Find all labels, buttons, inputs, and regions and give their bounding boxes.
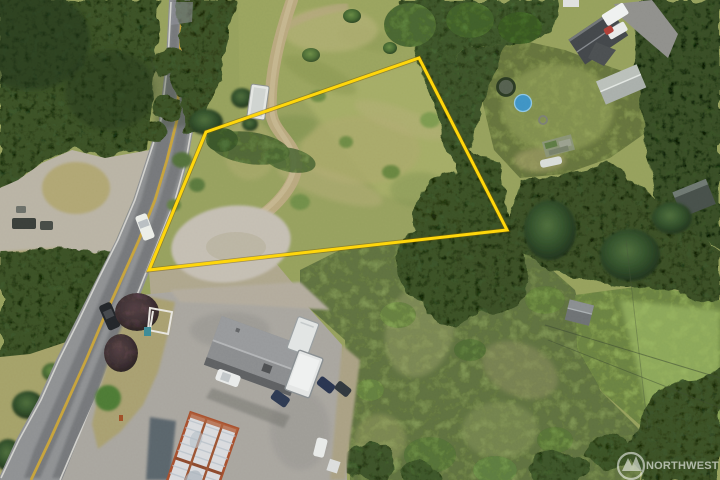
svg-text:NORTHWEST: NORTHWEST <box>646 460 719 472</box>
